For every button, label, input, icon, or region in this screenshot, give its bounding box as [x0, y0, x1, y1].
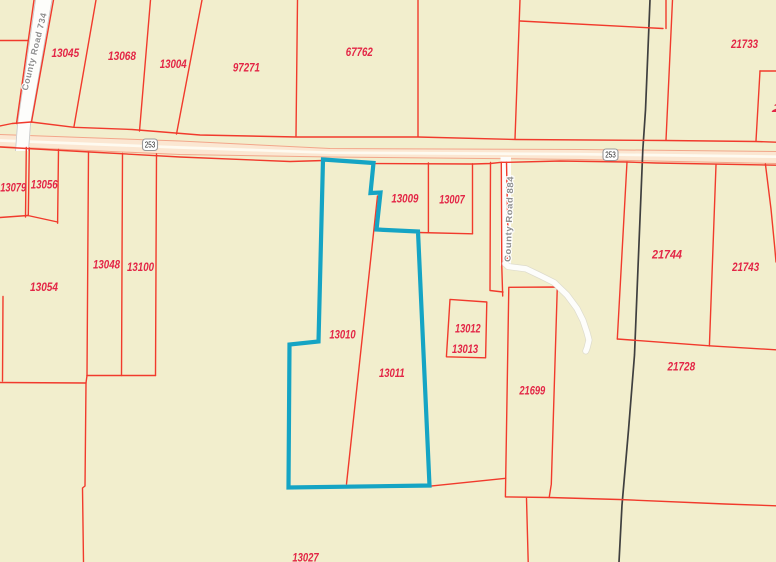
- svg-text:13027: 13027: [292, 550, 319, 562]
- svg-text:13011: 13011: [379, 366, 405, 380]
- svg-text:13048: 13048: [93, 257, 120, 271]
- svg-text:67762: 67762: [346, 45, 373, 59]
- svg-text:21744: 21744: [651, 247, 682, 261]
- svg-text:253: 253: [145, 141, 156, 150]
- svg-text:21728: 21728: [667, 360, 696, 374]
- svg-text:13056: 13056: [31, 177, 58, 191]
- svg-text:13054: 13054: [30, 280, 58, 294]
- svg-text:13004: 13004: [160, 57, 187, 71]
- svg-text:21743: 21743: [731, 260, 759, 274]
- svg-text:13079: 13079: [0, 180, 26, 194]
- svg-text:13013: 13013: [452, 342, 478, 356]
- svg-text:13009: 13009: [391, 192, 418, 206]
- svg-text:21733: 21733: [730, 37, 758, 51]
- svg-text:13012: 13012: [455, 322, 481, 336]
- svg-text:13100: 13100: [127, 260, 154, 274]
- svg-text:97271: 97271: [233, 60, 260, 74]
- svg-text:13045: 13045: [51, 46, 79, 60]
- svg-text:13007: 13007: [439, 193, 466, 207]
- svg-text:13010: 13010: [329, 327, 356, 341]
- svg-text:253: 253: [605, 151, 616, 160]
- svg-text:13068: 13068: [108, 49, 136, 63]
- svg-text:21699: 21699: [519, 383, 546, 397]
